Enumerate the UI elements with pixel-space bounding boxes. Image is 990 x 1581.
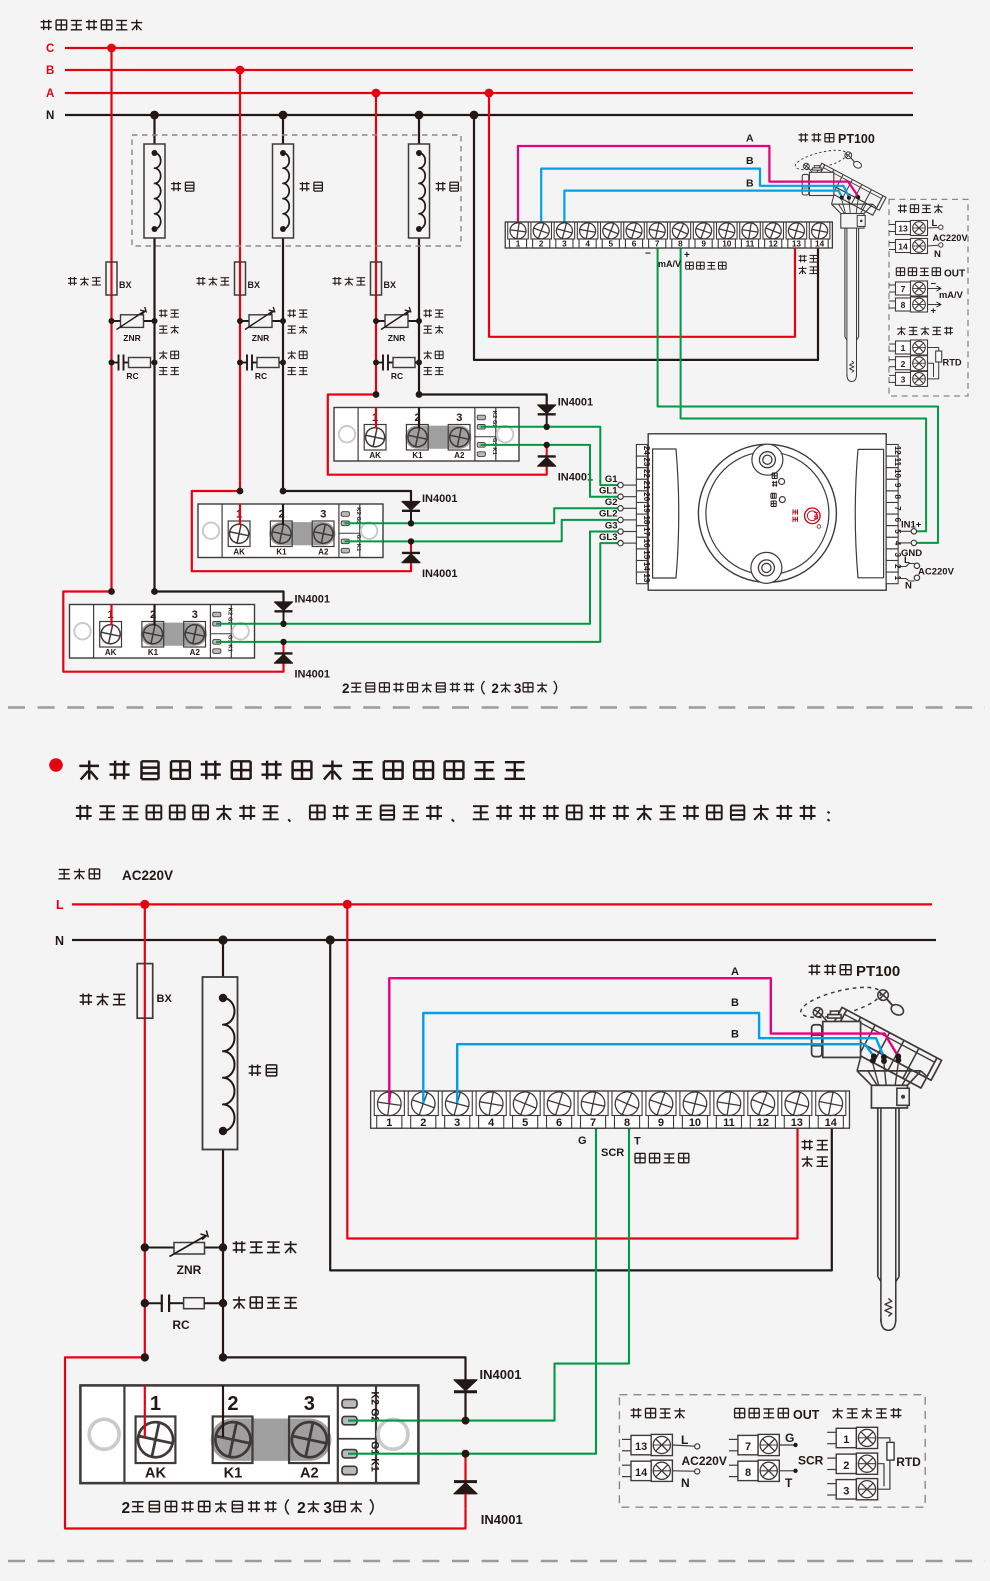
svg-text:2: 2 — [843, 1460, 849, 1472]
svg-text:BX: BX — [248, 280, 261, 290]
svg-text:8: 8 — [624, 1117, 630, 1129]
svg-text:K1: K1 — [276, 548, 287, 557]
svg-text:L: L — [932, 218, 938, 229]
svg-text:L: L — [56, 898, 64, 912]
svg-text:AC220V: AC220V — [933, 233, 969, 243]
svg-text:9: 9 — [893, 483, 902, 488]
svg-text:−: − — [931, 278, 937, 289]
svg-text:mA/V: mA/V — [939, 290, 964, 300]
svg-text:16: 16 — [642, 539, 651, 548]
svg-text:10: 10 — [893, 469, 902, 478]
svg-text:IN4001: IN4001 — [295, 594, 330, 606]
svg-text:IN4001: IN4001 — [295, 669, 330, 681]
svg-text:1: 1 — [901, 343, 906, 353]
svg-text:A: A — [746, 133, 754, 145]
svg-text:14: 14 — [642, 562, 651, 571]
svg-text:2: 2 — [227, 1393, 238, 1415]
svg-text:PT100: PT100 — [856, 963, 900, 980]
svg-text:G3: G3 — [605, 520, 618, 531]
svg-text:GL3: GL3 — [599, 532, 617, 543]
svg-text:2: 2 — [420, 1117, 426, 1129]
svg-text:IN4001: IN4001 — [422, 568, 457, 580]
svg-text:G: G — [578, 1135, 587, 1147]
svg-text:8: 8 — [745, 1467, 751, 1479]
svg-text:N: N — [681, 1476, 690, 1490]
svg-text:ZNR: ZNR — [123, 333, 140, 343]
svg-text:18: 18 — [642, 515, 651, 524]
svg-text:3: 3 — [320, 509, 326, 521]
svg-text:3: 3 — [304, 1393, 315, 1415]
svg-text:3: 3 — [562, 239, 567, 248]
svg-text:11: 11 — [723, 1117, 735, 1129]
svg-text:AC220V: AC220V — [918, 567, 955, 578]
svg-text:4: 4 — [488, 1117, 495, 1129]
svg-text:13: 13 — [792, 239, 802, 248]
svg-text:13: 13 — [898, 224, 908, 234]
svg-text:HR: HR — [812, 512, 818, 520]
svg-text:14: 14 — [898, 242, 908, 252]
svg-text:12: 12 — [893, 446, 902, 455]
svg-text:IN4001: IN4001 — [558, 472, 593, 484]
svg-text:A2: A2 — [190, 648, 201, 657]
svg-text:2: 2 — [539, 239, 544, 248]
svg-text:3: 3 — [514, 681, 522, 696]
svg-text:+: + — [931, 306, 937, 317]
svg-text:1: 1 — [516, 239, 521, 248]
svg-text:K1: K1 — [355, 544, 361, 552]
svg-text:14: 14 — [825, 1117, 838, 1129]
svg-text:PT100: PT100 — [838, 132, 875, 146]
svg-text:T: T — [634, 1136, 641, 1148]
svg-text:8: 8 — [678, 239, 683, 248]
svg-text:L: L — [904, 555, 910, 566]
svg-text:IN1+: IN1+ — [901, 520, 922, 531]
svg-text:2: 2 — [901, 359, 906, 369]
svg-text:−: − — [645, 249, 651, 260]
svg-text:N: N — [934, 249, 941, 260]
svg-text:3: 3 — [192, 609, 198, 621]
svg-text:N: N — [55, 934, 64, 948]
svg-text:15: 15 — [642, 550, 651, 559]
svg-text:23: 23 — [642, 457, 651, 466]
svg-text:7: 7 — [745, 1441, 751, 1453]
svg-text:11: 11 — [893, 458, 902, 467]
svg-text:C: C — [46, 43, 54, 55]
svg-text:+: + — [684, 250, 690, 261]
svg-text:3: 3 — [323, 1500, 332, 1517]
svg-text:RC: RC — [391, 371, 403, 381]
svg-text:K1: K1 — [148, 648, 159, 657]
svg-text:N: N — [46, 110, 54, 122]
svg-text:3: 3 — [843, 1485, 849, 1497]
svg-text:11: 11 — [746, 239, 755, 248]
svg-text:K1: K1 — [368, 1458, 380, 1472]
svg-text:B: B — [731, 997, 739, 1009]
svg-text:3: 3 — [901, 375, 906, 385]
svg-text:AK: AK — [105, 648, 117, 657]
svg-text:GL1: GL1 — [599, 486, 618, 497]
svg-text:3: 3 — [456, 412, 462, 424]
svg-text:K1: K1 — [224, 1466, 243, 1482]
svg-text:5: 5 — [522, 1117, 528, 1129]
svg-text:OUT: OUT — [944, 269, 965, 280]
svg-text:RTD: RTD — [896, 1455, 921, 1469]
svg-text:1: 1 — [386, 1117, 392, 1129]
svg-text:7: 7 — [655, 239, 660, 248]
svg-text:AK: AK — [145, 1466, 167, 1482]
svg-text:AC220V: AC220V — [122, 868, 173, 883]
svg-text:G1: G1 — [605, 474, 618, 485]
svg-text:mA/V: mA/V — [658, 259, 681, 269]
svg-text:9: 9 — [658, 1117, 664, 1129]
svg-text:RTD: RTD — [943, 358, 962, 368]
svg-text:BX: BX — [157, 993, 173, 1005]
svg-text:13: 13 — [642, 573, 651, 582]
svg-text:IN4001: IN4001 — [480, 1367, 522, 1382]
svg-text:7: 7 — [901, 284, 906, 294]
svg-text:14: 14 — [815, 239, 825, 248]
svg-text:12: 12 — [757, 1117, 769, 1129]
svg-text:AK: AK — [369, 451, 381, 460]
svg-text:K2: K2 — [227, 608, 233, 615]
svg-text:G: G — [785, 1431, 794, 1445]
svg-text:10: 10 — [689, 1117, 701, 1129]
svg-text:1: 1 — [150, 1393, 161, 1415]
svg-text:6: 6 — [556, 1117, 562, 1129]
svg-text:OUT: OUT — [793, 1408, 820, 1422]
svg-text:13: 13 — [791, 1117, 803, 1129]
svg-text:K1: K1 — [227, 644, 233, 652]
svg-text:ZNR: ZNR — [388, 333, 405, 343]
svg-text:SCR: SCR — [798, 1454, 824, 1468]
svg-text:G2: G2 — [605, 497, 618, 508]
svg-text:5: 5 — [609, 239, 614, 248]
svg-text:K2: K2 — [368, 1391, 380, 1405]
svg-text:20: 20 — [642, 492, 651, 501]
svg-text:L: L — [681, 1433, 688, 1447]
svg-text:8: 8 — [901, 300, 906, 310]
svg-text:ZNR: ZNR — [177, 1263, 202, 1277]
svg-text:ZNR: ZNR — [252, 333, 269, 343]
svg-text:T: T — [785, 1476, 793, 1490]
svg-text:N: N — [905, 581, 912, 592]
svg-text:B: B — [731, 1029, 739, 1041]
svg-text:A: A — [46, 88, 54, 100]
svg-text:8: 8 — [893, 494, 902, 499]
svg-text:SCR: SCR — [601, 1147, 624, 1159]
svg-text:A2: A2 — [454, 451, 465, 460]
svg-text:6: 6 — [632, 239, 637, 248]
svg-text:B: B — [746, 155, 754, 167]
svg-text:10: 10 — [722, 239, 732, 248]
svg-text:RC: RC — [126, 371, 138, 381]
svg-text:21: 21 — [642, 481, 651, 490]
svg-text:AC220V: AC220V — [682, 1454, 727, 1468]
svg-text:BX: BX — [119, 280, 132, 290]
svg-text:3: 3 — [454, 1117, 460, 1129]
svg-text:K2: K2 — [491, 411, 497, 418]
svg-text:A2: A2 — [300, 1466, 319, 1482]
svg-text:IN4001: IN4001 — [422, 493, 457, 505]
svg-text:1: 1 — [843, 1434, 849, 1446]
svg-text:AK: AK — [233, 548, 245, 557]
svg-text:13: 13 — [635, 1441, 647, 1453]
svg-text:19: 19 — [642, 504, 651, 513]
svg-text:IN4001: IN4001 — [558, 397, 593, 409]
svg-text:9: 9 — [701, 239, 706, 248]
svg-text:12: 12 — [769, 239, 779, 248]
svg-text:2: 2 — [342, 681, 350, 696]
svg-text:RC: RC — [255, 371, 267, 381]
svg-text:14: 14 — [635, 1467, 648, 1479]
svg-text:A: A — [731, 966, 739, 978]
svg-text:7: 7 — [590, 1117, 596, 1129]
svg-text:4: 4 — [585, 239, 590, 248]
svg-text:24: 24 — [642, 446, 651, 455]
svg-text:K2: K2 — [355, 507, 361, 514]
svg-text:2: 2 — [297, 1500, 306, 1517]
svg-text:2: 2 — [122, 1500, 131, 1517]
svg-text:BX: BX — [384, 280, 397, 290]
svg-text:K1: K1 — [412, 451, 423, 460]
svg-text:IN4001: IN4001 — [481, 1512, 523, 1527]
svg-text:A2: A2 — [318, 548, 329, 557]
svg-text:B: B — [46, 65, 54, 77]
svg-text:RC: RC — [172, 1318, 190, 1332]
svg-text:B: B — [746, 178, 754, 190]
svg-text:K1: K1 — [491, 447, 497, 455]
svg-text:GL2: GL2 — [599, 509, 617, 520]
svg-text:17: 17 — [642, 527, 651, 536]
svg-text:22: 22 — [642, 469, 651, 478]
svg-text:2: 2 — [491, 681, 499, 696]
svg-text:7: 7 — [893, 506, 902, 511]
